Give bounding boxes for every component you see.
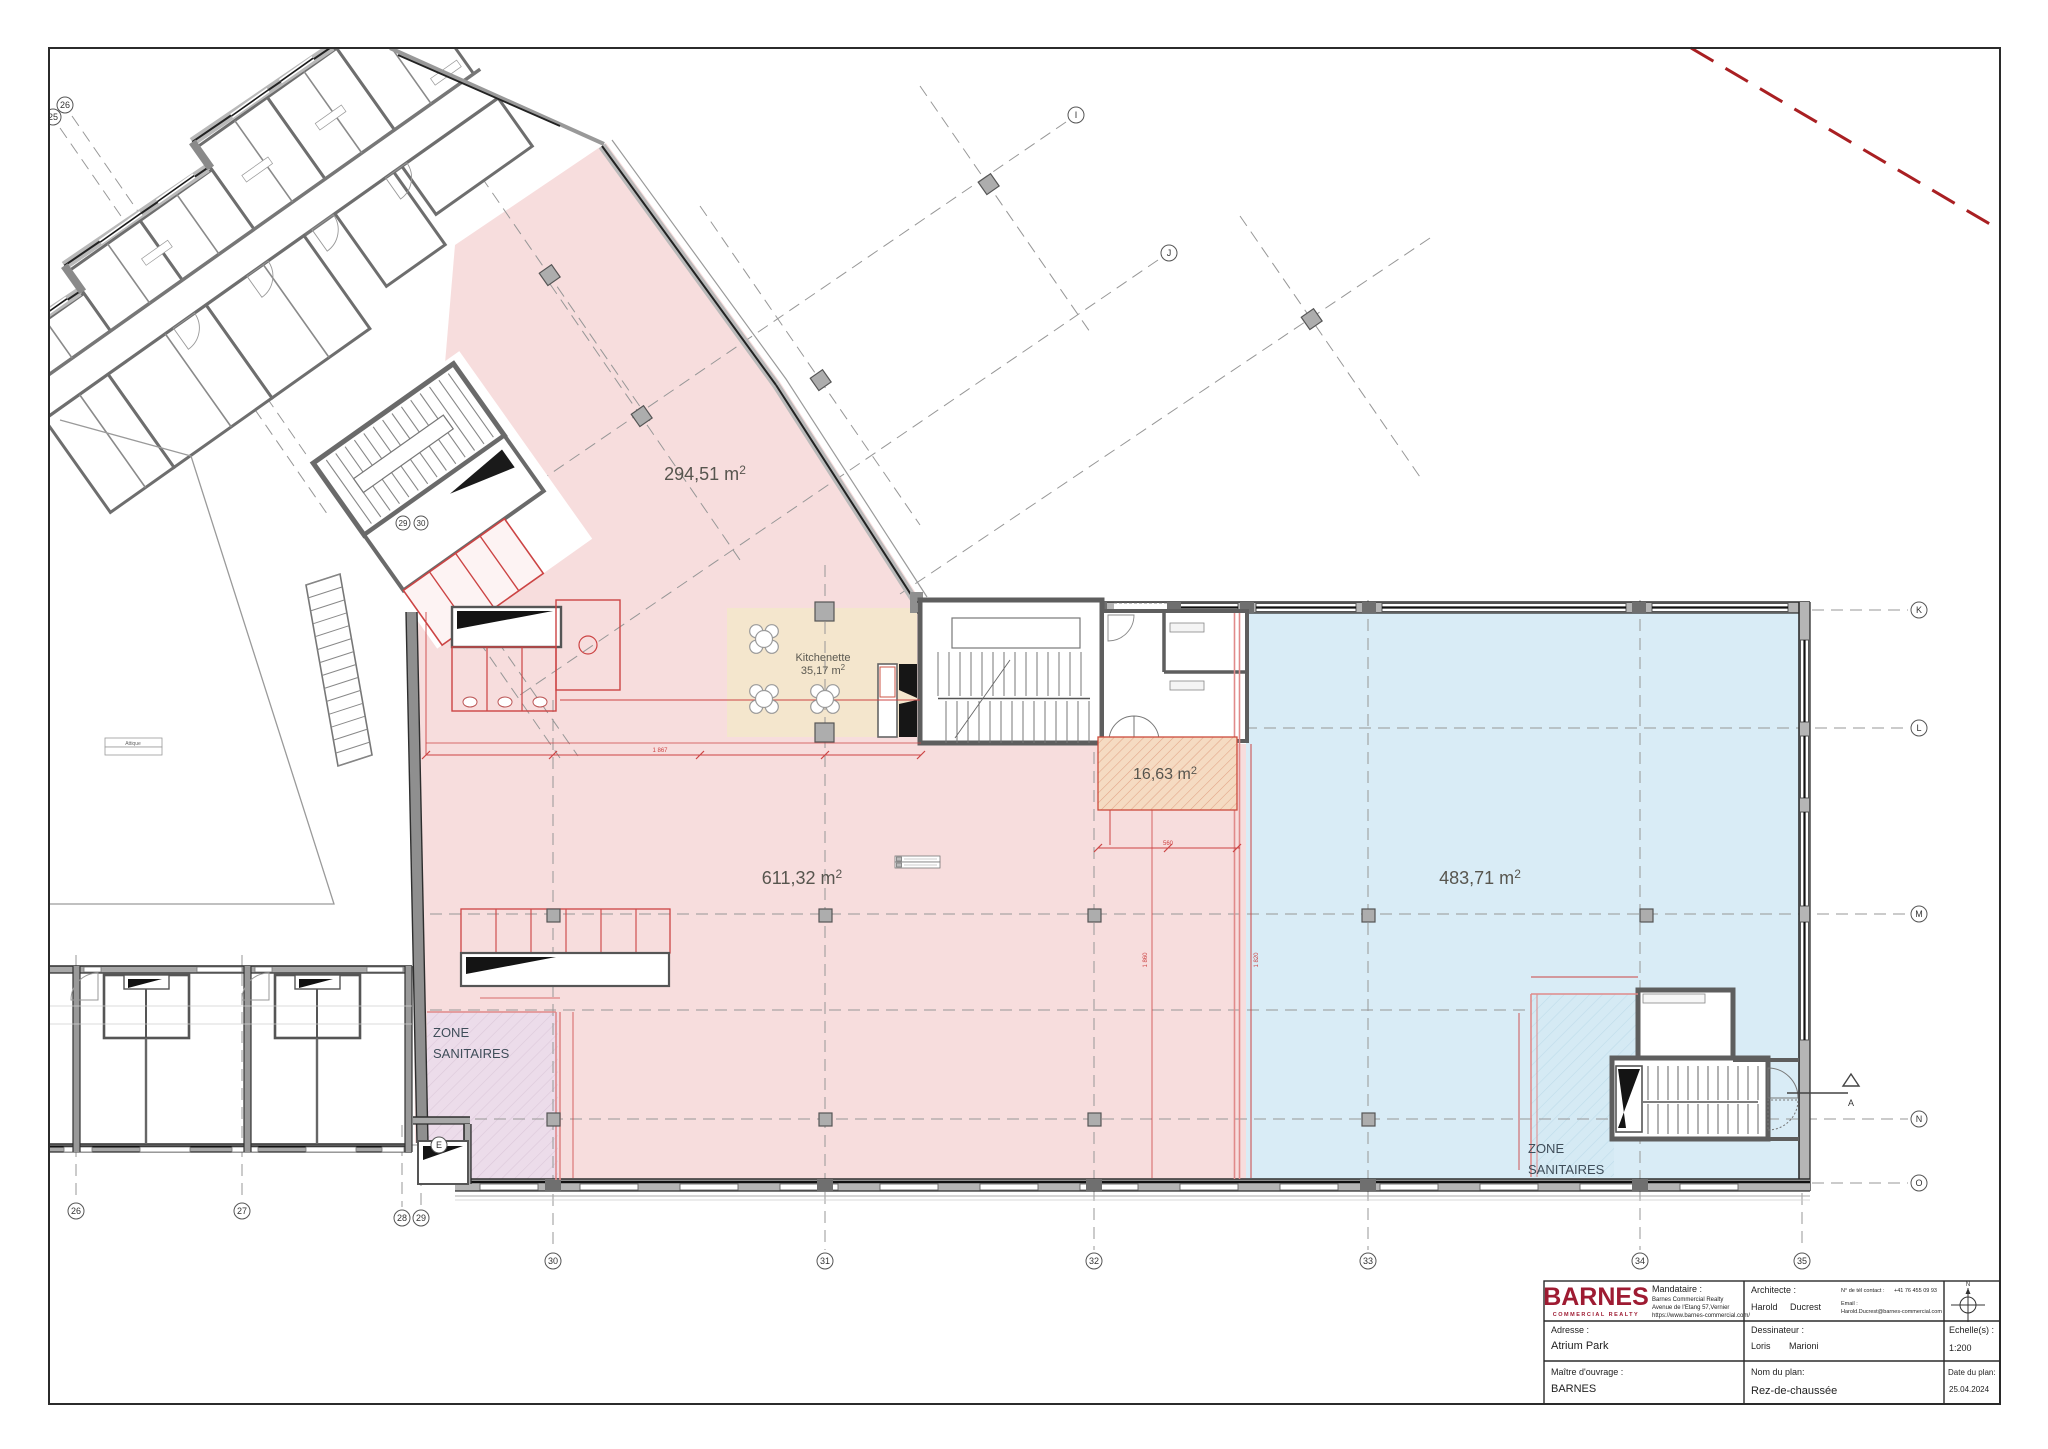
svg-text:COMMERCIAL REALTY: COMMERCIAL REALTY bbox=[1553, 1312, 1639, 1318]
svg-text:Loris: Loris bbox=[1751, 1341, 1771, 1351]
svg-text:N° de tél contact :: N° de tél contact : bbox=[1841, 1288, 1885, 1294]
svg-text:Architecte :: Architecte : bbox=[1751, 1285, 1796, 1295]
svg-text:1 860: 1 860 bbox=[1143, 952, 1149, 968]
svg-text:Email :: Email : bbox=[1841, 1301, 1858, 1307]
svg-text:Avenue de l'Etang 57,Vernier: Avenue de l'Etang 57,Vernier bbox=[1652, 1305, 1729, 1311]
svg-text:28: 28 bbox=[397, 1213, 407, 1223]
svg-text:ZONE: ZONE bbox=[1528, 1141, 1564, 1156]
svg-text:Harold.Ducrest@barnes-commerci: Harold.Ducrest@barnes-commercial.com bbox=[1841, 1309, 1942, 1315]
svg-text:29: 29 bbox=[416, 1213, 426, 1223]
svg-text:29: 29 bbox=[399, 519, 408, 528]
svg-text:+41 76 455 09 93: +41 76 455 09 93 bbox=[1894, 1288, 1937, 1294]
svg-text:31: 31 bbox=[820, 1256, 830, 1266]
svg-text:SANITAIRES: SANITAIRES bbox=[1528, 1162, 1605, 1177]
svg-text:33: 33 bbox=[1363, 1256, 1373, 1266]
svg-text:35: 35 bbox=[1797, 1256, 1807, 1266]
svg-text:26: 26 bbox=[60, 100, 70, 110]
svg-text:30: 30 bbox=[417, 519, 426, 528]
svg-text:https://www.barnes-commercial.: https://www.barnes-commercial.com/ bbox=[1652, 1313, 1750, 1319]
svg-text:26: 26 bbox=[71, 1206, 81, 1216]
svg-text:ZONE: ZONE bbox=[433, 1025, 469, 1040]
svg-text:16,63 m2: 16,63 m2 bbox=[1133, 765, 1197, 783]
svg-text:N: N bbox=[1966, 1282, 1970, 1288]
svg-text:25.04.2024: 25.04.2024 bbox=[1949, 1385, 1990, 1394]
svg-text:30: 30 bbox=[548, 1256, 558, 1266]
svg-text:M: M bbox=[1915, 909, 1923, 919]
svg-text:L: L bbox=[1916, 723, 1921, 733]
svg-text:Dessinateur :: Dessinateur : bbox=[1751, 1325, 1804, 1335]
svg-text:611,32 m2: 611,32 m2 bbox=[762, 867, 843, 888]
svg-text:32: 32 bbox=[1089, 1256, 1099, 1266]
svg-text:Marioni: Marioni bbox=[1789, 1341, 1819, 1351]
svg-text:1 867: 1 867 bbox=[652, 748, 668, 754]
svg-text:Nom du plan:: Nom du plan: bbox=[1751, 1367, 1805, 1377]
svg-text:1 820: 1 820 bbox=[1254, 952, 1260, 968]
svg-text:294,51 m2: 294,51 m2 bbox=[664, 463, 746, 484]
svg-text:Atrium Park: Atrium Park bbox=[1551, 1340, 1609, 1352]
svg-text:Attique: Attique bbox=[125, 741, 141, 747]
svg-text:Barnes Commercial Realty: Barnes Commercial Realty bbox=[1652, 1297, 1723, 1303]
svg-text:A: A bbox=[1848, 1098, 1854, 1108]
svg-text:K: K bbox=[1916, 605, 1922, 615]
svg-text:483,71 m2: 483,71 m2 bbox=[1439, 867, 1521, 888]
svg-text:E: E bbox=[436, 1140, 442, 1150]
svg-text:N: N bbox=[1916, 1114, 1923, 1124]
svg-text:BARNES: BARNES bbox=[1551, 1383, 1596, 1395]
svg-text:Rez-de-chaussée: Rez-de-chaussée bbox=[1751, 1385, 1837, 1397]
svg-text:Mandataire :: Mandataire : bbox=[1652, 1284, 1702, 1294]
svg-text:O: O bbox=[1915, 1178, 1922, 1188]
svg-text:Harold: Harold bbox=[1751, 1302, 1778, 1312]
svg-text:Ducrest: Ducrest bbox=[1790, 1302, 1822, 1312]
svg-text:35,17 m2: 35,17 m2 bbox=[801, 663, 846, 677]
svg-text:Adresse :: Adresse : bbox=[1551, 1325, 1589, 1335]
svg-text:I: I bbox=[1075, 110, 1078, 120]
svg-text:Echelle(s) :: Echelle(s) : bbox=[1949, 1325, 1994, 1335]
svg-text:1:200: 1:200 bbox=[1949, 1343, 1972, 1353]
svg-text:BARNES: BARNES bbox=[1543, 1283, 1649, 1311]
svg-text:Maître d'ouvrage :: Maître d'ouvrage : bbox=[1551, 1367, 1623, 1377]
svg-text:27: 27 bbox=[237, 1206, 247, 1216]
svg-text:560: 560 bbox=[1163, 841, 1174, 847]
svg-text:SANITAIRES: SANITAIRES bbox=[433, 1046, 510, 1061]
svg-text:34: 34 bbox=[1635, 1256, 1645, 1266]
svg-text:J: J bbox=[1167, 248, 1172, 258]
svg-text:Date du plan:: Date du plan: bbox=[1948, 1368, 1996, 1377]
